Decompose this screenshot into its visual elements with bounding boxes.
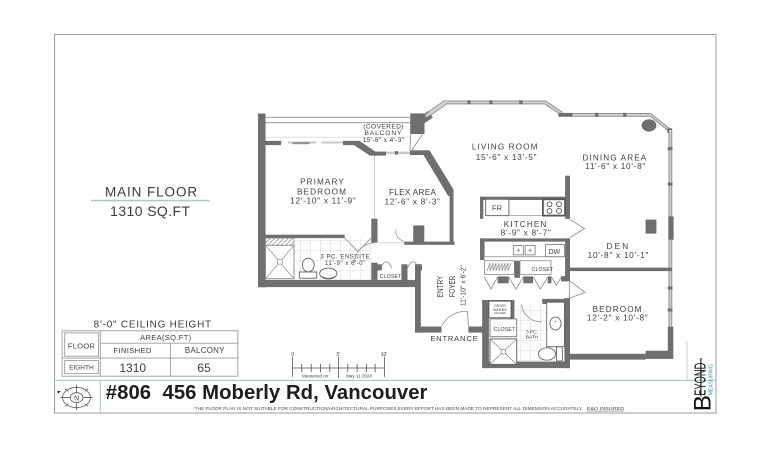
- svg-text:BALCONY: BALCONY: [185, 346, 225, 355]
- svg-text:E&O INSURED: E&O INSURED: [587, 406, 625, 411]
- svg-text:11'-10" x 6'-2": 11'-10" x 6'-2": [458, 265, 467, 306]
- svg-text:EIGHTH: EIGHTH: [69, 364, 94, 371]
- svg-text:5': 5': [337, 352, 341, 358]
- svg-text:N: N: [74, 395, 79, 402]
- svg-text:B: B: [690, 395, 717, 411]
- svg-text:ENTRANCE: ENTRANCE: [430, 334, 478, 343]
- svg-text:11'-6" x 10'-8": 11'-6" x 10'-8": [585, 161, 646, 171]
- svg-text:AREA(SQ.FT): AREA(SQ.FT): [140, 333, 192, 342]
- svg-text:May 11 2024: May 11 2024: [346, 373, 372, 378]
- svg-text:0: 0: [291, 352, 294, 358]
- svg-text:FINISHED: FINISHED: [113, 346, 151, 355]
- svg-text:11'-9" x 6'-0": 11'-9" x 6'-0": [325, 261, 366, 267]
- svg-text:STACKED: STACKED: [494, 311, 506, 315]
- svg-text:DW: DW: [549, 249, 561, 256]
- svg-text:1310: 1310: [119, 361, 146, 375]
- svg-text:1310 SQ.FT: 1310 SQ.FT: [110, 203, 190, 219]
- svg-text:CLOSET: CLOSET: [532, 267, 555, 273]
- svg-text:ENTRY: ENTRY: [435, 275, 445, 297]
- svg-text:CLOSET: CLOSET: [380, 274, 403, 280]
- svg-text:8'-9" x 8'-7": 8'-9" x 8'-7": [501, 227, 552, 237]
- svg-text:LIVING ROOM: LIVING ROOM: [472, 143, 539, 152]
- svg-text:12'-6" x 8'-3": 12'-6" x 8'-3": [384, 196, 440, 206]
- svg-text:10': 10': [381, 352, 388, 358]
- svg-text:Measured on:: Measured on:: [302, 373, 330, 378]
- svg-text:3 PC. ENSUITE: 3 PC. ENSUITE: [320, 254, 370, 260]
- svg-text:#806 456 Moberly Rd, Vancouve: #806 456 Moberly Rd, Vancouver: [106, 382, 428, 404]
- svg-text:10'-8" x 10'-1": 10'-8" x 10'-1": [588, 250, 650, 260]
- svg-text:65: 65: [197, 361, 211, 375]
- svg-text:8'-0" CEILING HEIGHT: 8'-0" CEILING HEIGHT: [94, 319, 212, 330]
- svg-text:12'-10" x 11'-9": 12'-10" x 11'-9": [290, 196, 356, 206]
- svg-text:15'-8" x 4'-3": 15'-8" x 4'-3": [363, 137, 405, 144]
- svg-text:MAIN FLOOR: MAIN FLOOR: [105, 185, 198, 200]
- svg-text:CLOSET: CLOSET: [494, 327, 517, 333]
- svg-text:FOYER: FOYER: [447, 276, 457, 298]
- svg-text:PRIMARY: PRIMARY: [300, 177, 345, 186]
- svg-text:THE FLOOR PLAN IS NOT SUITAB: THE FLOOR PLAN IS NOT SUITABLE FOR CONST…: [195, 406, 583, 411]
- svg-text:BATH: BATH: [526, 335, 539, 341]
- svg-text:12'-2" x 10'-8": 12'-2" x 10'-8": [587, 313, 649, 323]
- svg-text:FR: FR: [492, 204, 503, 213]
- svg-text:FLOOR: FLOOR: [68, 342, 96, 351]
- svg-text:WASHER: WASHER: [493, 308, 508, 312]
- svg-text:MEASURING: MEASURING: [709, 364, 715, 395]
- svg-text:15'-6" x 13'-5": 15'-6" x 13'-5": [476, 152, 538, 162]
